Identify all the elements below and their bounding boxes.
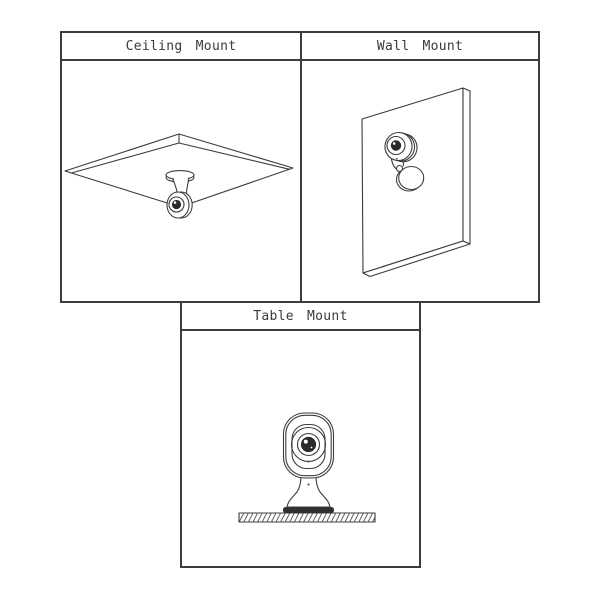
ceiling-mount-title: Ceiling Mount (62, 33, 300, 61)
mount-options-diagram: Ceiling Mount Wall Mount Table Mount (0, 0, 600, 600)
wall-mount-panel: Wall Mount (300, 31, 540, 303)
table-mount-title: Table Mount (182, 303, 419, 331)
wall-mount-title: Wall Mount (302, 33, 538, 61)
ceiling-mount-panel: Ceiling Mount (60, 31, 302, 303)
table-mount-panel: Table Mount (180, 301, 421, 568)
